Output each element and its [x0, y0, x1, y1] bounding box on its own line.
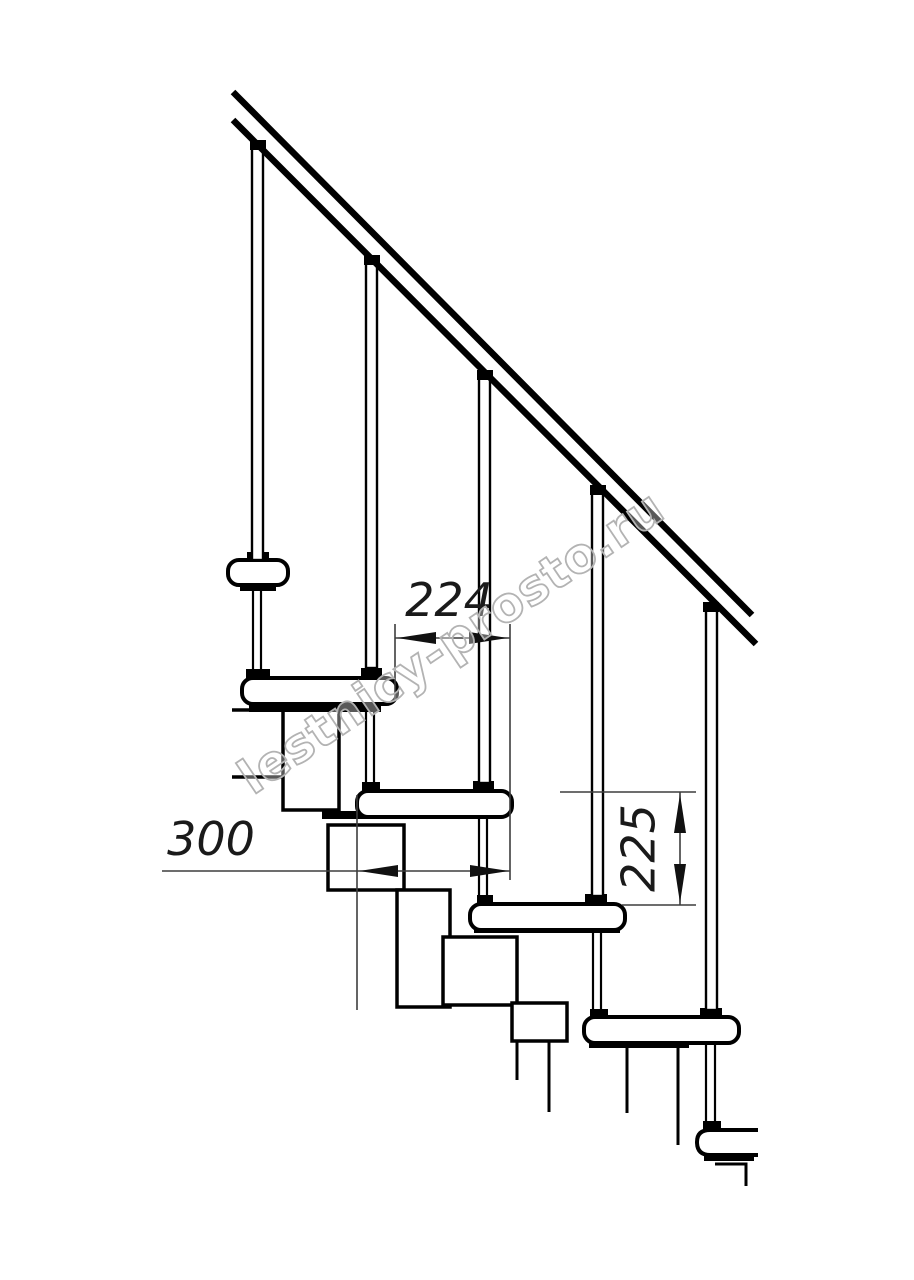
stud-nub — [362, 782, 380, 791]
stud — [593, 926, 601, 1019]
baluster — [366, 263, 377, 668]
tread — [357, 791, 512, 817]
module-box — [443, 937, 517, 1005]
drawing-canvas: 224 300 225 lestnicy-prosto.ru — [0, 0, 914, 1280]
staircase-drawing: 224 300 225 lestnicy-prosto.ru — [0, 0, 914, 1280]
tread-partial-bottom — [697, 1130, 758, 1155]
arrowhead-down — [674, 864, 686, 903]
stud — [706, 1041, 715, 1132]
stud — [253, 584, 261, 680]
stud-nub — [477, 895, 493, 904]
handrail — [233, 92, 756, 644]
watermark: lestnicy-prosto.ru — [228, 479, 674, 805]
stud — [479, 813, 487, 906]
arrowhead-up — [674, 794, 686, 833]
module-box — [512, 1003, 567, 1041]
handrail-bottom-edge — [233, 120, 756, 644]
tread — [584, 1017, 739, 1043]
tread — [470, 904, 625, 930]
baluster — [706, 610, 717, 1010]
handrail-top-edge — [233, 92, 752, 615]
baluster — [252, 148, 263, 560]
dimension-riser-height: 225 — [560, 792, 696, 905]
arrowhead-right — [470, 865, 509, 877]
dimension-label-225: 225 — [612, 804, 666, 892]
module-trail-line — [715, 1164, 746, 1186]
stud-nub — [703, 1121, 721, 1130]
stud-nub — [246, 669, 270, 678]
stud-nub — [590, 1009, 608, 1018]
tread-partial-top — [228, 560, 288, 585]
module-box — [328, 825, 404, 890]
dimension-label-300: 300 — [167, 812, 255, 866]
